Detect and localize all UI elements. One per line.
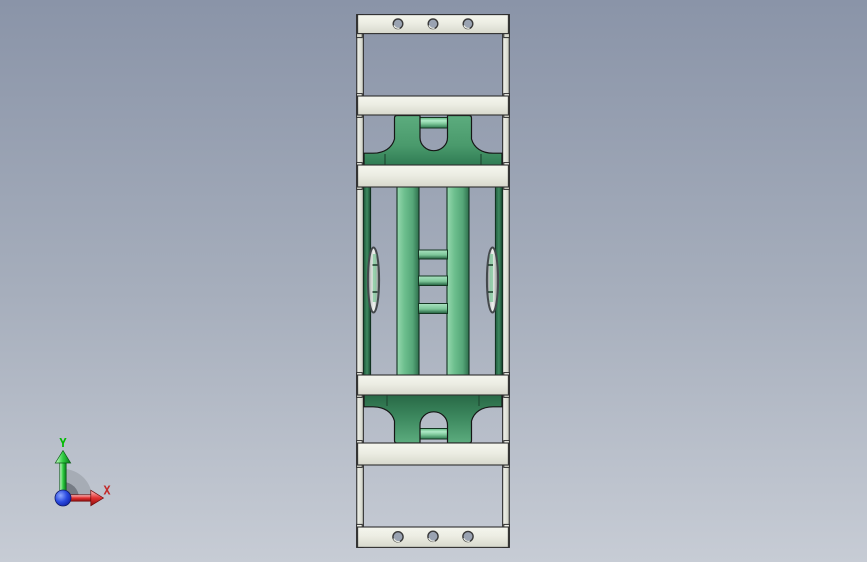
crossbar-3[interactable] xyxy=(357,373,510,398)
ladder-rung-3[interactable] xyxy=(419,304,448,314)
top-plate[interactable] xyxy=(357,15,510,38)
model-track-link[interactable] xyxy=(356,14,510,548)
viewport-canvas[interactable]: Y X xyxy=(0,0,867,562)
ladder-rung-1[interactable] xyxy=(419,250,448,259)
bottom-plate-hole-1 xyxy=(393,532,403,542)
right-column[interactable] xyxy=(447,186,469,376)
x-axis-label: X xyxy=(103,484,111,498)
bottom-plate-hole-3 xyxy=(463,531,473,541)
crossbar-4[interactable] xyxy=(357,441,510,468)
bottom-plate[interactable] xyxy=(357,524,510,547)
left-column[interactable] xyxy=(397,186,419,376)
top-slot-rung[interactable] xyxy=(419,118,448,129)
left-roller[interactable] xyxy=(368,248,379,313)
crossbar-2[interactable] xyxy=(357,163,510,190)
y-axis-label: Y xyxy=(59,436,67,450)
right-roller[interactable] xyxy=(487,248,498,313)
ladder-rung-2[interactable] xyxy=(419,276,448,286)
axis-triad: Y X xyxy=(46,436,122,516)
bottom-slot-rung[interactable] xyxy=(419,429,448,440)
top-plate-hole-2 xyxy=(428,19,438,29)
crossbar-1[interactable] xyxy=(357,94,510,118)
origin-sphere xyxy=(55,490,71,506)
top-plate-hole-1 xyxy=(393,19,403,29)
bottom-plate-hole-2 xyxy=(428,531,438,541)
top-plate-hole-3 xyxy=(463,19,473,29)
